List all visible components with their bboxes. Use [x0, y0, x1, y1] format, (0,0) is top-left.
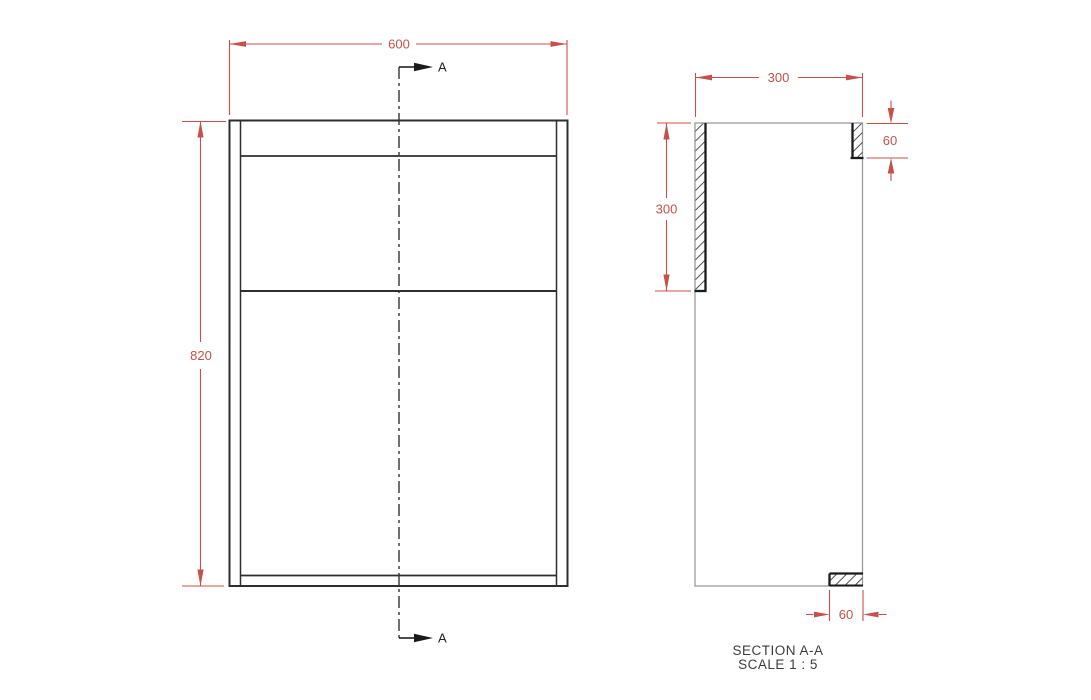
front-height-dimension-label: 820	[190, 348, 212, 363]
front-width-dimension-label: 600	[388, 37, 410, 52]
dim-arrow-icon	[197, 570, 203, 587]
dim-arrow-icon	[551, 41, 568, 47]
section-cut-length-dimension: 300	[655, 123, 691, 291]
front-height-dimension: 820	[182, 121, 226, 586]
drawing-canvas: A A 600 820	[0, 0, 1091, 700]
section-bottom-depth-dimension-label: 60	[839, 607, 853, 622]
section-cut-length-dimension-label: 300	[656, 202, 678, 217]
section-top-thickness-dimension-label: 60	[883, 133, 897, 148]
section-arrow-bottom-icon	[414, 634, 433, 642]
section-bottom-rail-hatch	[830, 574, 863, 586]
dim-arrow-icon	[663, 123, 669, 140]
front-width-dimension: 600	[230, 37, 568, 116]
section-scale-note: SCALE 1 : 5	[738, 657, 818, 672]
section-title: SECTION A-A	[732, 643, 823, 658]
drawing-sheet: A A 600 820	[0, 0, 1091, 700]
section-view	[695, 123, 864, 586]
dim-arrow-icon	[696, 75, 713, 81]
section-back-panel-hatch	[696, 124, 706, 292]
section-top-thickness-dimension: 60	[867, 101, 909, 182]
section-bottom-depth-dimension: 60	[806, 590, 887, 622]
section-visible-outline	[695, 123, 863, 586]
dim-arrow-icon	[846, 75, 863, 81]
section-arrow-top-icon	[414, 63, 433, 71]
dim-arrow-icon	[863, 612, 879, 618]
dim-arrow-icon	[888, 158, 895, 174]
section-top-rail-hatch	[853, 124, 863, 159]
section-depth-dimension: 300	[696, 70, 863, 117]
dim-arrow-icon	[230, 41, 247, 47]
section-marker-bottom-label: A	[438, 631, 447, 646]
dim-arrow-icon	[197, 121, 203, 138]
section-marker-top-label: A	[438, 60, 447, 75]
dim-arrow-icon	[814, 612, 830, 618]
dim-arrow-icon	[888, 108, 895, 124]
section-title-block: SECTION A-A SCALE 1 : 5	[732, 643, 823, 672]
dim-arrow-icon	[663, 275, 669, 292]
section-depth-dimension-label: 300	[768, 70, 790, 85]
